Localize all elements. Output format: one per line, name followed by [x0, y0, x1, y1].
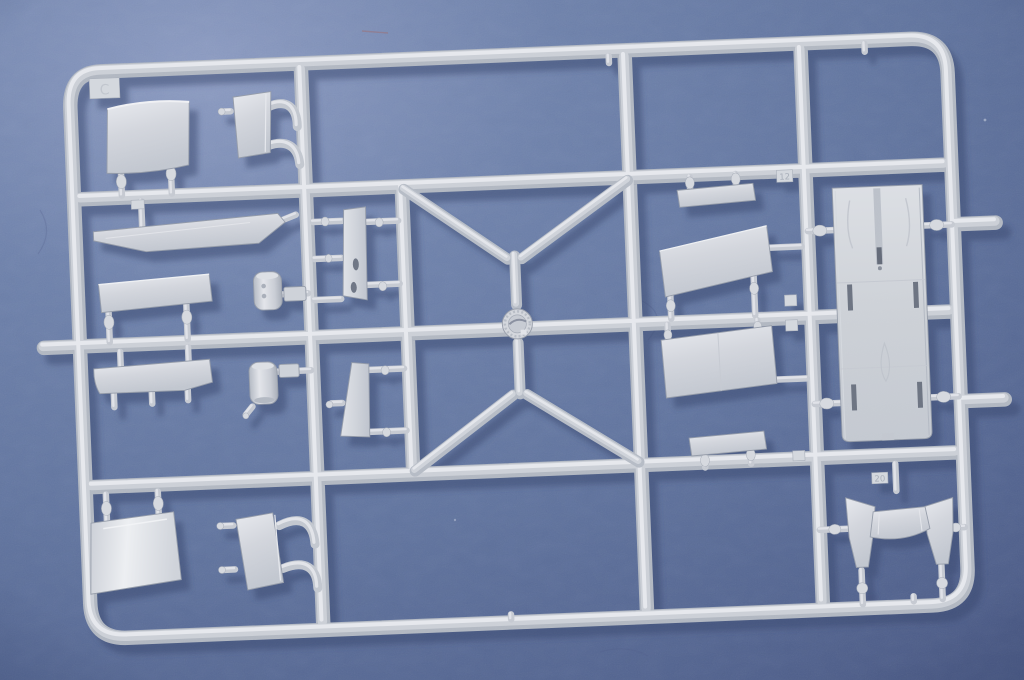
sprue-photo: C 12 20	[0, 0, 1024, 680]
vignette	[0, 0, 1024, 680]
